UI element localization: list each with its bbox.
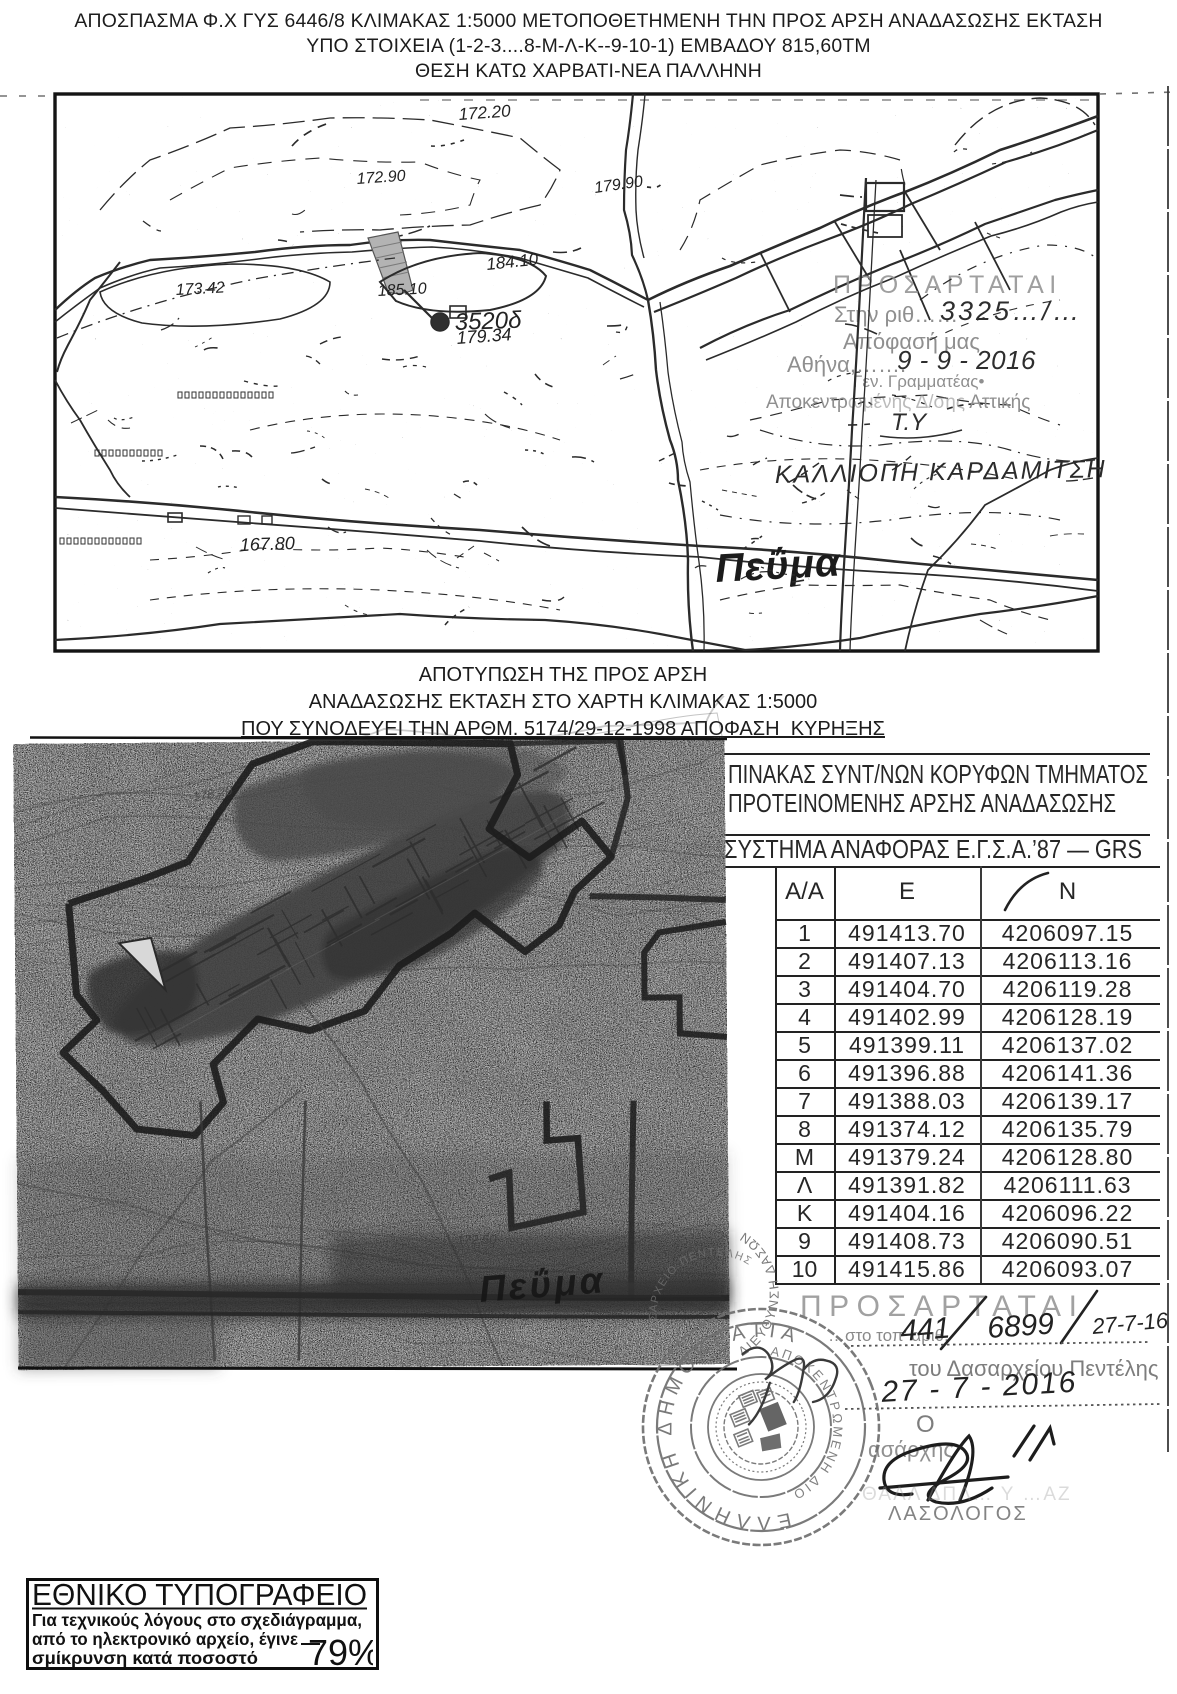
svg-text:27-7-16: 27-7-16 [1090, 1307, 1169, 1339]
svg-text:172.50: 172.50 [457, 1232, 498, 1247]
svg-text:Ο: Ο [916, 1411, 935, 1438]
svg-text:441: 441 [899, 1312, 951, 1348]
svg-text:ασάρχης: ασάρχης [868, 1437, 954, 1462]
svg-text:6899: 6899 [986, 1307, 1055, 1345]
svg-text:ΛΑΣΟΛΟΓΟΣ: ΛΑΣΟΛΟΓΟΣ [888, 1503, 1028, 1525]
svg-text:ΘΑΛΛ ΔΠΛ… Υ …ΑΖ: ΘΑΛΛ ΔΠΛ… Υ …ΑΖ [862, 1484, 1072, 1505]
